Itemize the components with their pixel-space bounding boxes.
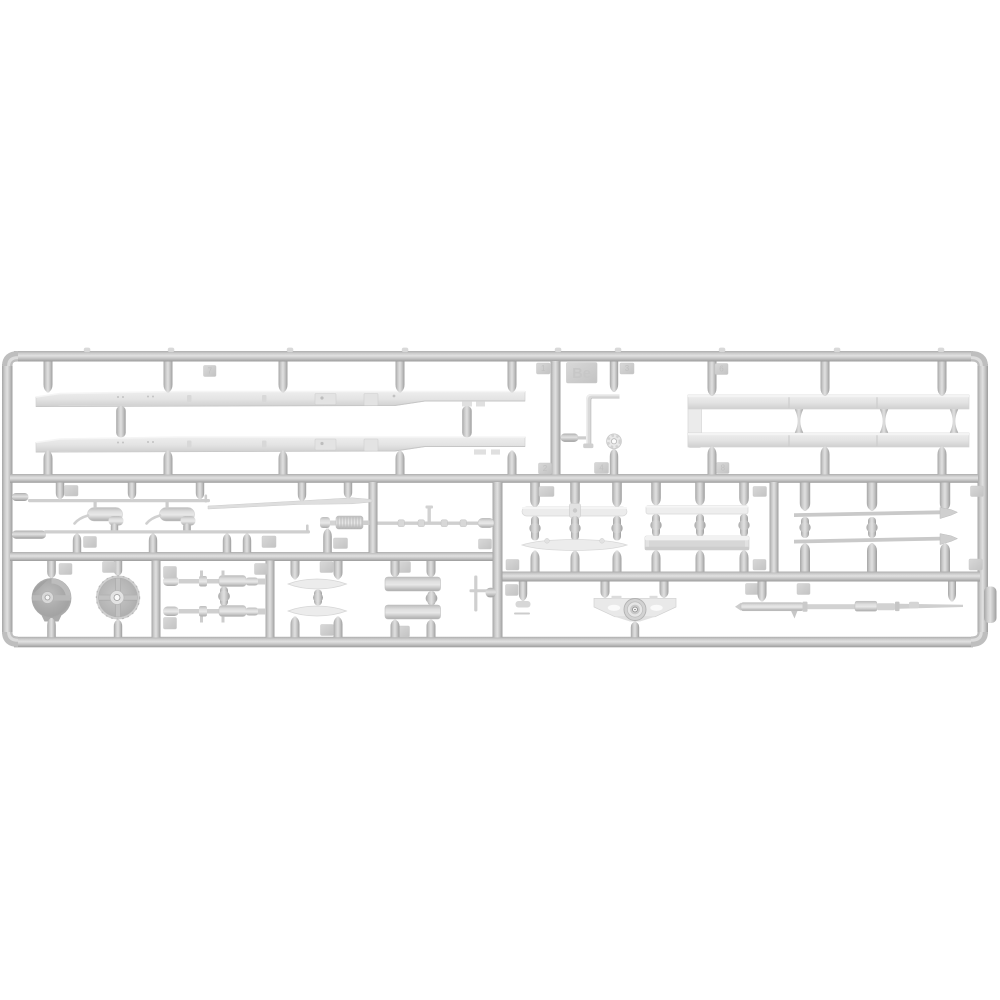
svg-text:4: 4 bbox=[599, 464, 604, 473]
svg-text:2: 2 bbox=[543, 464, 548, 473]
svg-text:3: 3 bbox=[625, 364, 630, 373]
svg-text:1: 1 bbox=[541, 364, 546, 373]
svg-text:6: 6 bbox=[719, 365, 724, 374]
svg-text:Be: Be bbox=[572, 366, 591, 382]
svg-text:8: 8 bbox=[721, 464, 726, 473]
svg-text:7: 7 bbox=[208, 367, 213, 376]
